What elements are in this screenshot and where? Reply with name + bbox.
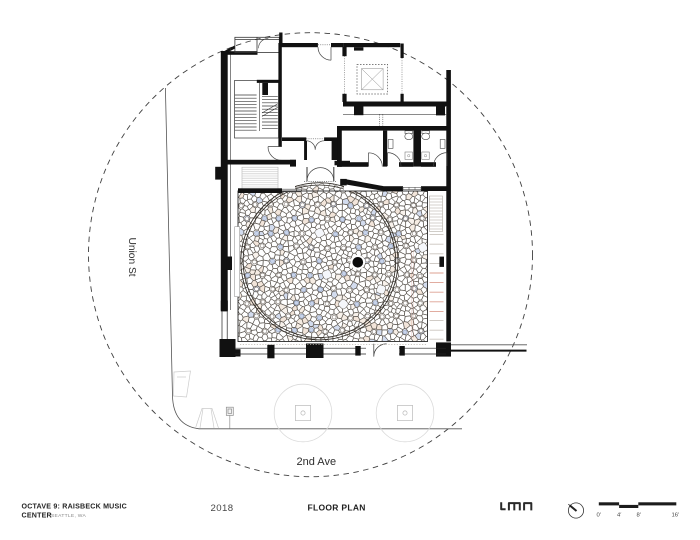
svg-text:SEATTLE, WA: SEATTLE, WA [51,513,87,519]
svg-text:OCTAVE 9: RAISBECK MUSIC: OCTAVE 9: RAISBECK MUSIC [22,502,127,510]
svg-text:16′: 16′ [672,513,680,519]
svg-text:2018: 2018 [211,503,234,514]
svg-text:CENTER: CENTER [22,511,52,519]
svg-text:Union St: Union St [126,238,137,277]
svg-text:0′: 0′ [597,513,601,519]
svg-text:FLOOR PLAN: FLOOR PLAN [308,503,366,513]
svg-text:4′: 4′ [617,513,621,519]
svg-text:8′: 8′ [637,513,641,519]
svg-text:2nd Ave: 2nd Ave [297,456,337,468]
